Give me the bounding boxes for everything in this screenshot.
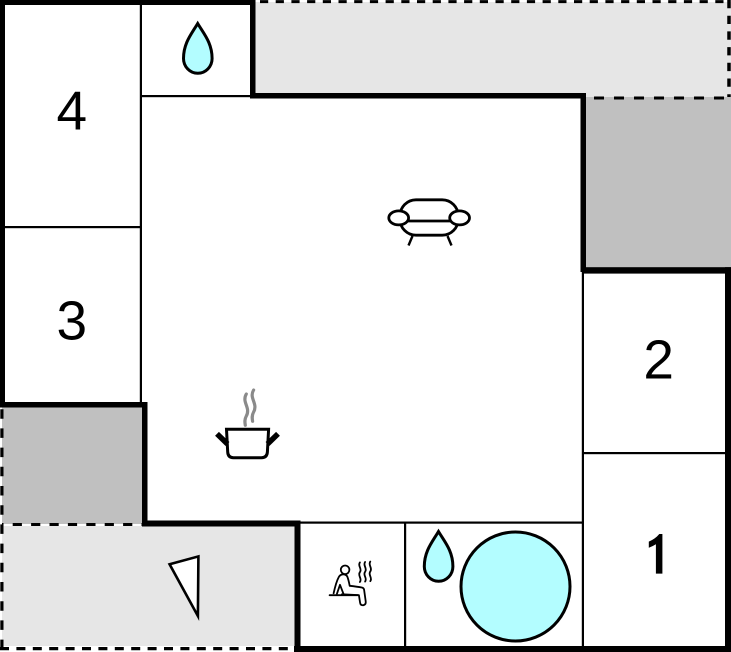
svg-text:2: 2 [643, 329, 674, 391]
svg-text:4: 4 [57, 80, 88, 142]
svg-text:3: 3 [57, 290, 88, 352]
